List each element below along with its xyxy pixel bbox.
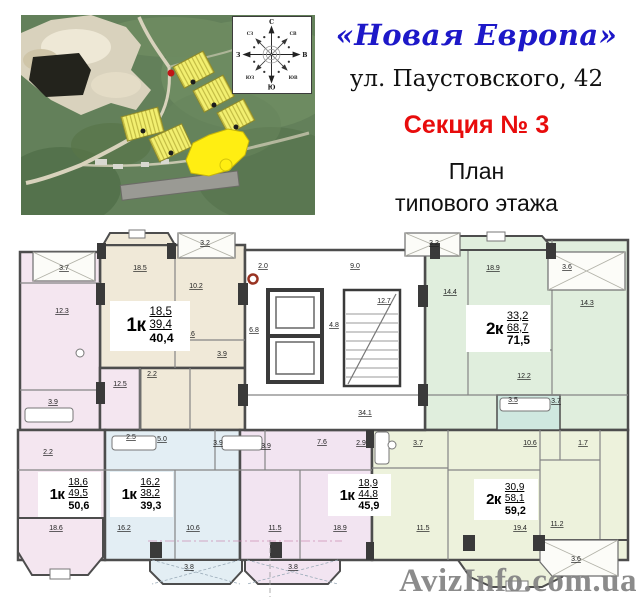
room-area-label: 18.9 <box>486 265 500 272</box>
room-area-label: 12.7 <box>377 298 391 305</box>
total-area: 39,3 <box>140 500 161 512</box>
room-area-label: 2.0 <box>258 263 268 270</box>
room-area-label: 12.2 <box>517 373 531 380</box>
room-area-label: 3.9 <box>213 440 223 447</box>
red-marker <box>168 70 175 77</box>
plan-subtitle: План типового этажа <box>316 155 637 219</box>
room-area-label: 6.8 <box>249 327 259 334</box>
living-area: 16,2 <box>140 477 159 488</box>
room-area-label: 18.5 <box>133 265 147 272</box>
compass-west-label: З <box>236 52 241 59</box>
section-title: Секция № 3 <box>316 111 637 140</box>
usable-area: 39,4 <box>149 319 171 332</box>
usable-area: 44,8 <box>358 489 377 500</box>
apartment-label-2k592: 2к 30,9 58,1 59,2 <box>474 479 538 520</box>
total-area: 59,2 <box>505 505 526 517</box>
living-area: 18,6 <box>68 477 87 488</box>
room-area-label: 12.5 <box>113 381 127 388</box>
plan-subtitle-line1: План <box>316 155 637 187</box>
room-area-label: 2.9 <box>356 440 366 447</box>
room-area-label: 2.2 <box>147 371 157 378</box>
compass-nw-label: СЗ <box>247 31 253 36</box>
apartment-type: 1к <box>126 315 145 337</box>
room-area-label: 16.2 <box>117 525 131 532</box>
room-area-label: 18.9 <box>333 525 347 532</box>
plan-subtitle-line2: типового этажа <box>316 187 637 219</box>
apartment-label-2k715: 2к 33,2 68,7 71,5 <box>466 305 550 352</box>
compass-east-label: В <box>302 52 307 59</box>
living-area: 18,9 <box>358 478 377 489</box>
total-area: 45,9 <box>358 500 379 512</box>
living-area: 33,2 <box>507 310 528 322</box>
total-area: 50,6 <box>68 500 89 512</box>
room-area-label: 10.6 <box>523 440 537 447</box>
room-area-label: 3.7 <box>551 398 561 405</box>
usable-area: 58,1 <box>505 493 524 504</box>
compass-rose: С Ю В З СВ СЗ ЮВ ЮЗ <box>232 16 312 94</box>
room-area-label: 4.8 <box>329 322 339 329</box>
room-area-label: 12.3 <box>55 308 69 315</box>
apartment-1k506-room125 <box>100 368 140 430</box>
room-area-label: 10.2 <box>189 283 203 290</box>
room-area-label: 11.5 <box>268 525 281 532</box>
apartment-type: 1к <box>122 486 137 503</box>
room-area-label: 3.2 <box>200 240 210 247</box>
usable-area: 49,5 <box>68 488 87 499</box>
room-area-label: 3.6 <box>562 264 572 271</box>
compass-south-label: Ю <box>268 85 276 92</box>
staircase <box>344 290 400 386</box>
apartment-type: 2к <box>486 319 503 339</box>
room-area-label: 34.1 <box>358 410 372 417</box>
room-area-label: 5.0 <box>157 436 167 443</box>
room-area-label: 3.9 <box>48 399 58 406</box>
living-area: 18,5 <box>149 306 171 319</box>
usable-area: 38,2 <box>140 488 159 499</box>
room-area-label: 3.5 <box>508 397 518 404</box>
header-titles: «Новая Европа» ул. Паустовского, 42 Секц… <box>316 18 637 219</box>
room-area-label: 14.3 <box>580 300 594 307</box>
room-area-label: 3.2 <box>429 240 439 247</box>
room-area-label: 10.6 <box>186 525 200 532</box>
room-area-label: 3.9 <box>217 351 227 358</box>
compass-sw-label: ЮЗ <box>246 75 254 80</box>
room-area-label: 3.6 <box>571 556 581 563</box>
compass-ne-label: СВ <box>290 31 297 36</box>
total-area: 40,4 <box>149 332 173 346</box>
room-area-label: 11.2 <box>550 521 563 528</box>
apartment-label-1k404: 1к 18,5 39,4 40,4 <box>110 301 190 351</box>
room-area-label: 1.7 <box>578 440 588 447</box>
room-area-label: 9.0 <box>350 263 360 270</box>
room-area-label: 2.2 <box>43 449 53 456</box>
apartment-type: 1к <box>340 487 355 504</box>
compass-se-label: ЮВ <box>289 75 298 80</box>
total-area: 71,5 <box>507 334 530 347</box>
room-area-label: 11.5 <box>416 525 429 532</box>
elevator-shaft <box>268 290 322 382</box>
room-area-label: 19.4 <box>513 525 527 532</box>
compass-north-label: С <box>269 19 274 26</box>
apartment-label-1k393: 1к 16,2 38,2 39,3 <box>110 472 173 517</box>
apartment-label-1k459: 1к 18,9 44,8 45,9 <box>328 474 391 516</box>
room-area-label: 3.9 <box>261 443 271 450</box>
complex-name: «Новая Европа» <box>316 18 637 52</box>
floor-plan: 3.712.33.912.518.510.24.62.23.93.22.09.0… <box>0 225 637 600</box>
garbage-chute <box>249 275 258 284</box>
apartment-type: 1к <box>50 486 65 503</box>
room-area-label: 7.6 <box>317 439 327 446</box>
living-area: 30,9 <box>505 482 524 493</box>
room-area-label: 3.7 <box>59 265 69 272</box>
apartment-label-1k506: 1к 18,6 49,5 50,6 <box>38 472 101 517</box>
room-area-label: 14.4 <box>443 289 457 296</box>
address: ул. Паустовского, 42 <box>316 66 637 92</box>
flyer-page: С Ю В З СВ СЗ ЮВ ЮЗ «Новая Европа» ул. П… <box>0 0 637 600</box>
watermark: AvizInfo.com.ua <box>358 563 637 600</box>
room-area-label: 3.7 <box>413 440 423 447</box>
apartment-type: 2к <box>486 491 501 508</box>
room-area-label: 3.8 <box>288 564 298 571</box>
room-area-label: 18.6 <box>49 525 63 532</box>
room-area-label: 2.5 <box>126 434 136 441</box>
room-area-label: 3.8 <box>184 564 194 571</box>
